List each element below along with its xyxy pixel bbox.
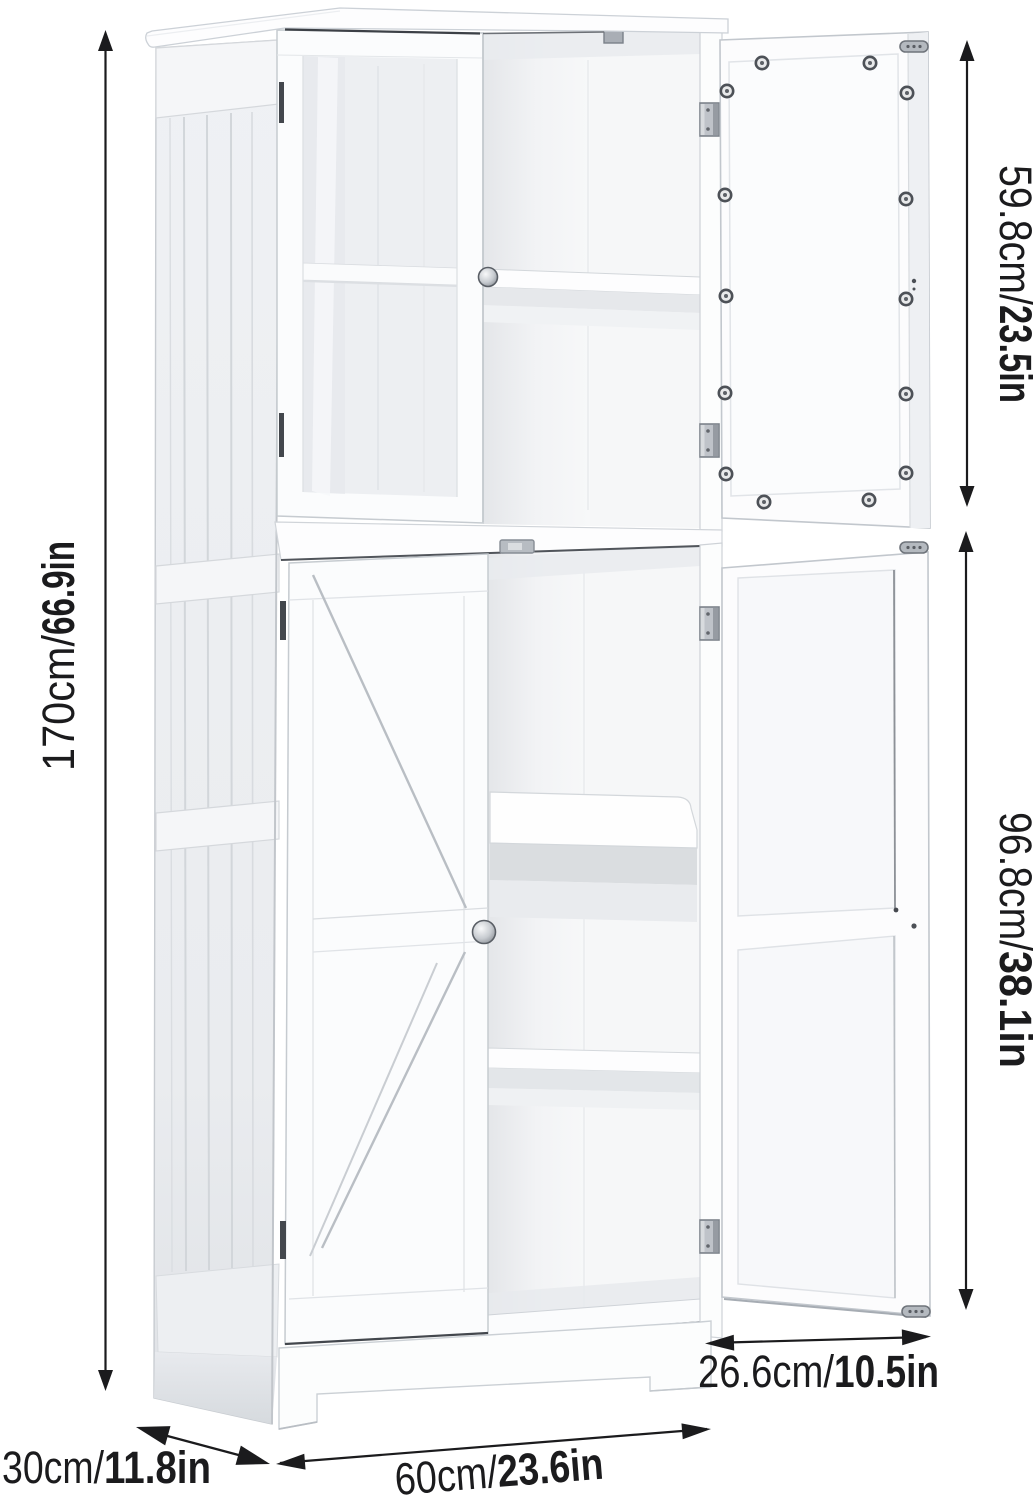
svg-text:30cm/11.8in: 30cm/11.8in: [2, 1442, 211, 1493]
svg-text:59.8cm/23.5in: 59.8cm/23.5in: [990, 165, 1035, 403]
svg-text:170cm/66.9in: 170cm/66.9in: [33, 541, 84, 771]
svg-text:96.8cm/38.1in: 96.8cm/38.1in: [990, 812, 1035, 1068]
svg-text:26.6cm/10.5in: 26.6cm/10.5in: [698, 1346, 939, 1397]
